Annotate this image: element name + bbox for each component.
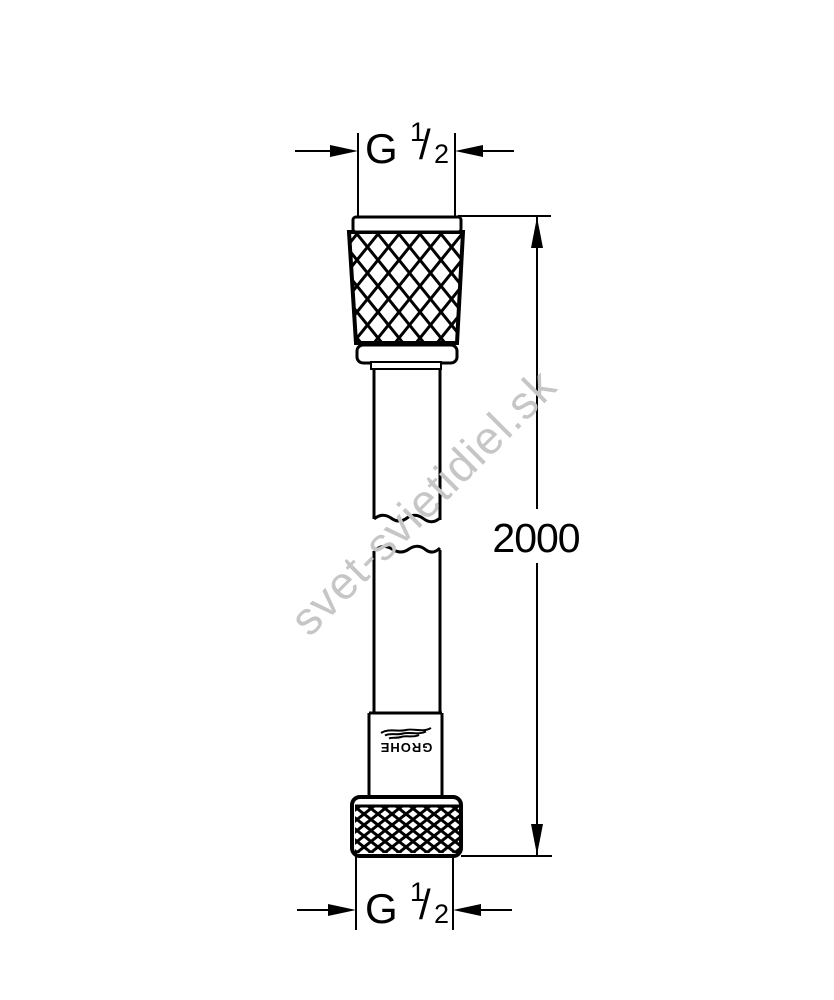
bottom-connector-knurl-fill [355,806,459,853]
grohe-logo-waves-icon [378,725,434,741]
diagram-canvas: svet-svietidiel.sk G 1 / 2 2000 GROHE G … [0,0,834,1000]
top-connector-collar [371,362,441,369]
length-dimension-value: 2000 [489,518,583,559]
top-thread-denominator: 2 [434,141,449,168]
bottom-thread-denominator: 2 [434,901,449,928]
top-connector [349,217,463,369]
grohe-logo: GROHE [377,721,435,754]
bottom-arrowhead-left [328,904,356,916]
length-arrowhead-down [531,824,543,855]
length-arrowhead-up [531,217,543,248]
top-thread-letter: G [365,128,398,170]
bottom-thread-label: G 1 / 2 [365,886,460,936]
top-thread-slash: / [419,124,431,166]
grohe-logo-text: GROHE [380,741,433,754]
top-arrowhead-left [330,145,358,157]
bottom-thread-letter: G [365,888,398,930]
top-connector-lower-band [357,345,457,363]
top-thread-label: G 1 / 2 [365,126,460,176]
top-connector-knurl [349,232,463,343]
top-connector-upper-band [353,217,461,232]
bottom-thread-slash: / [419,884,431,926]
